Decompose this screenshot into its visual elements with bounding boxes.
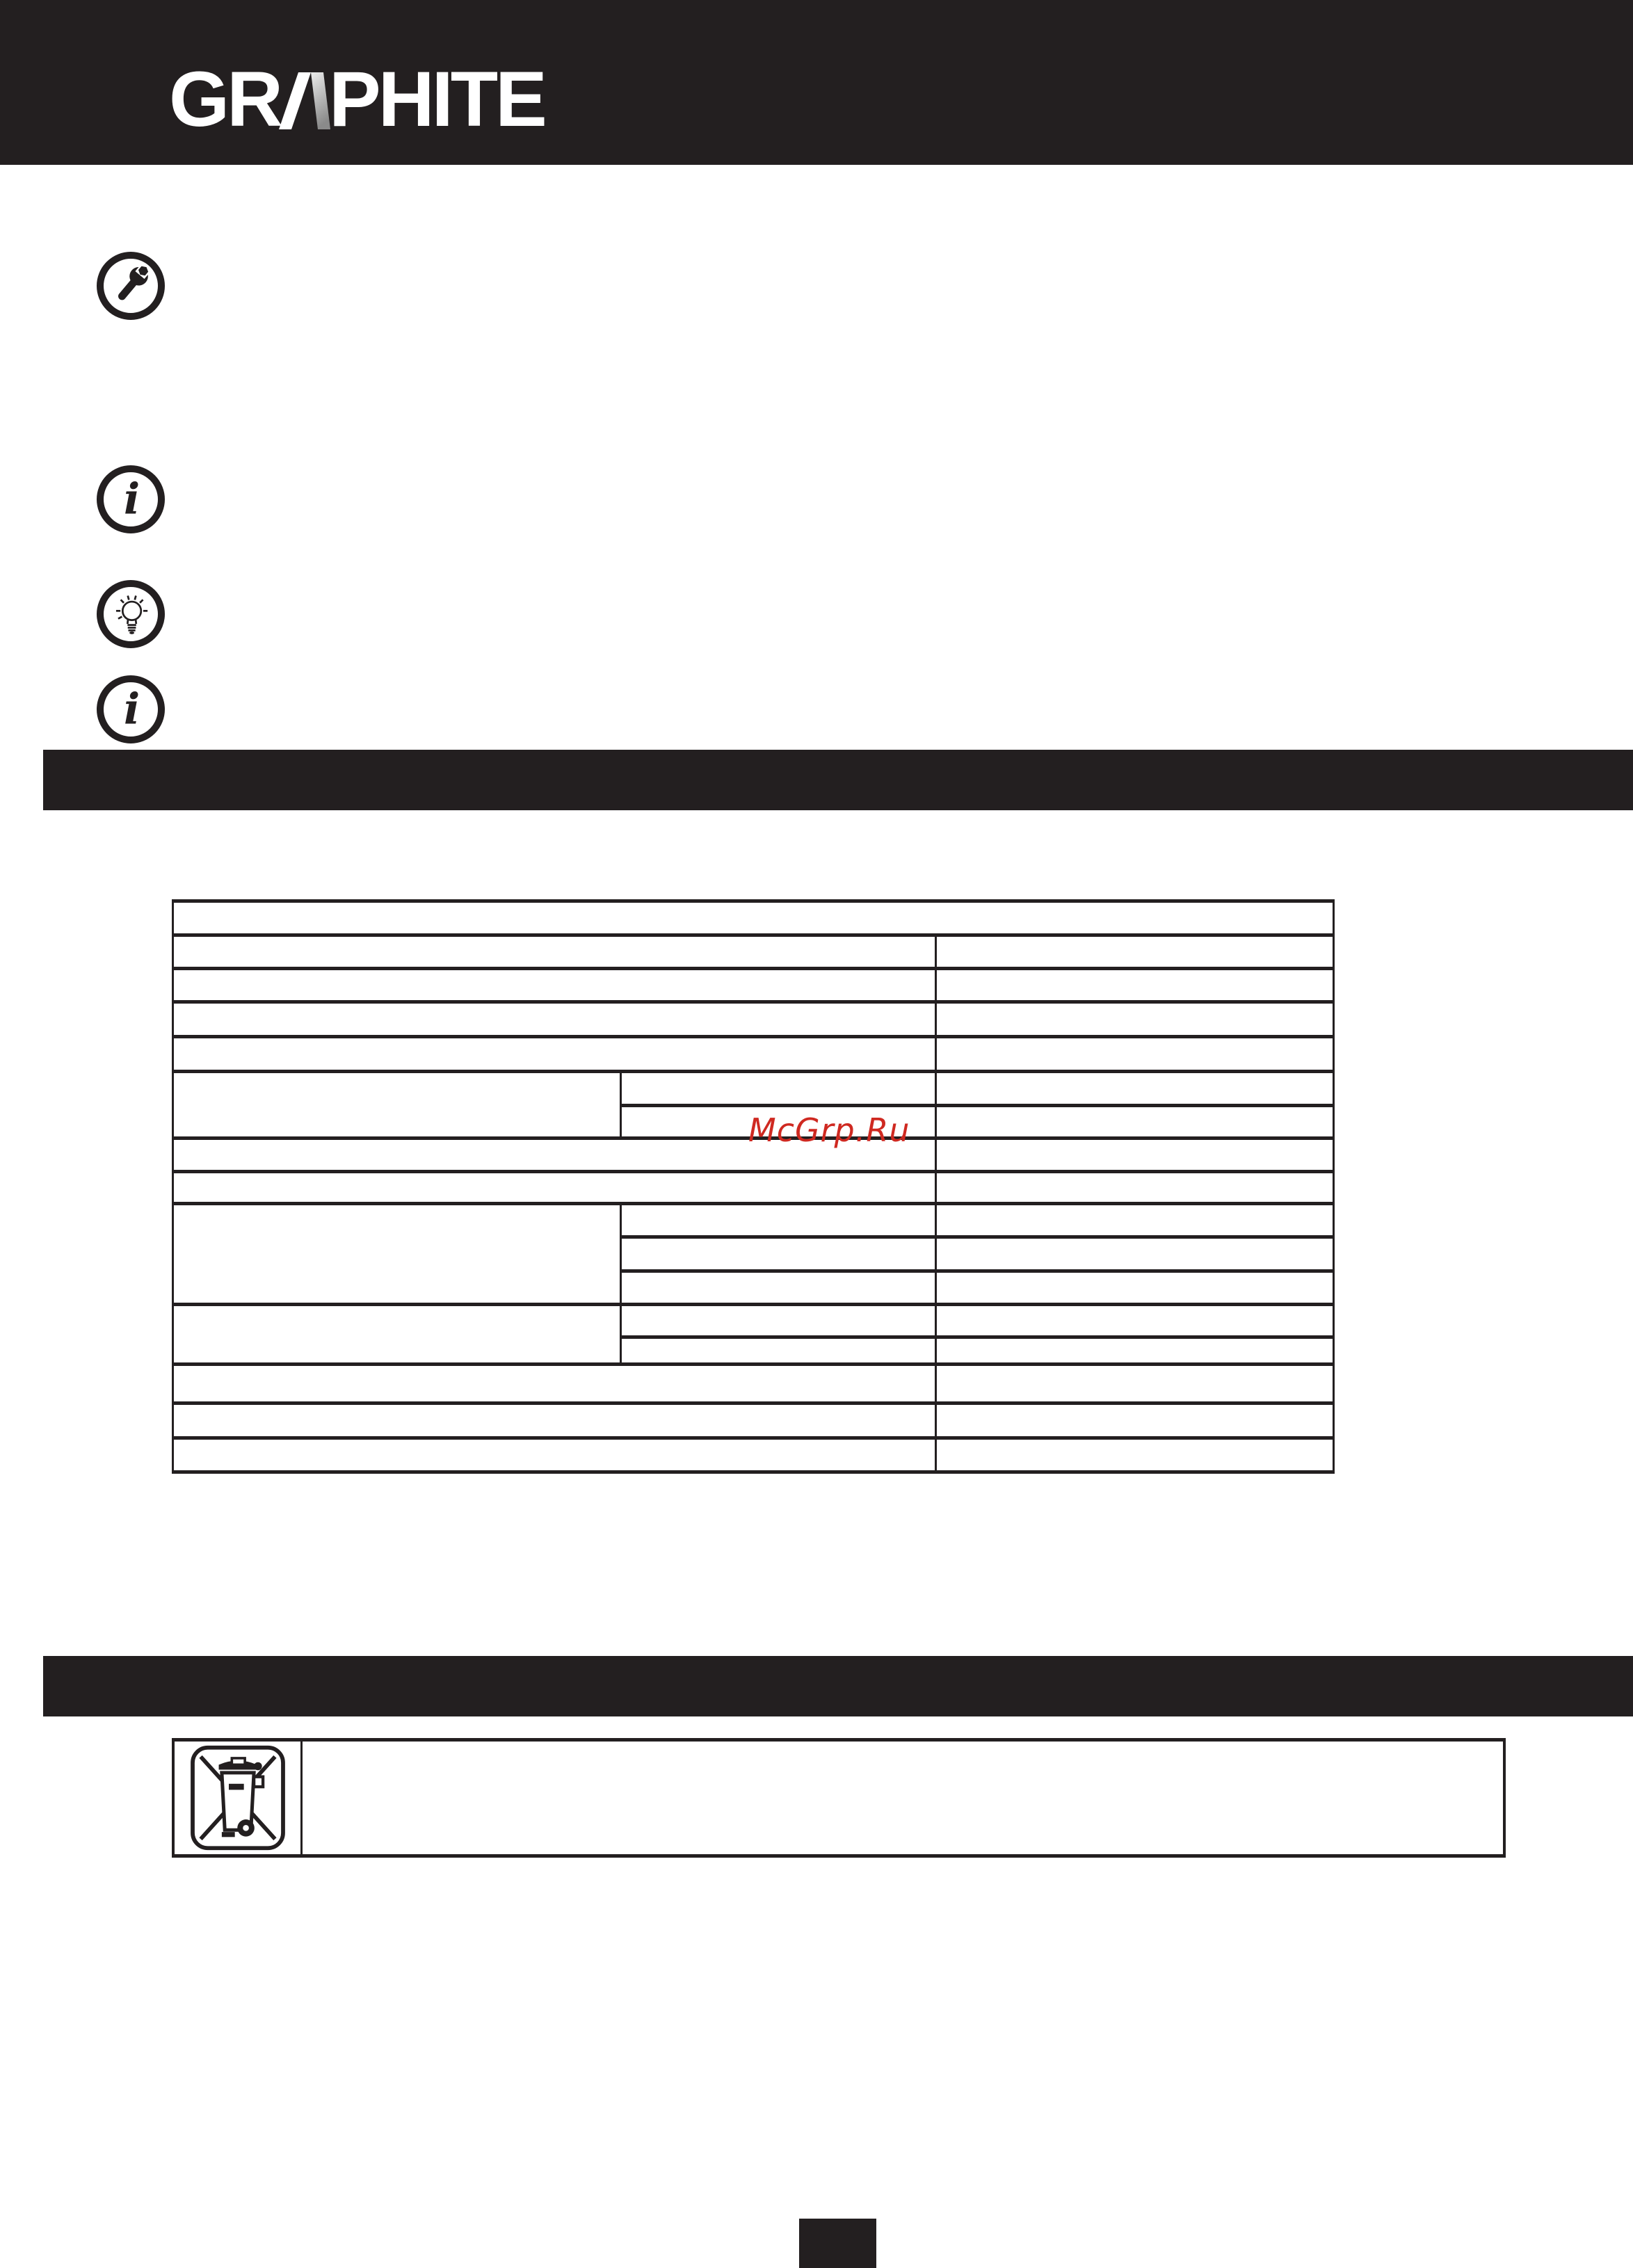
spec-cell — [173, 1365, 936, 1404]
spec-cell — [173, 1172, 936, 1204]
svg-text:i: i — [124, 474, 140, 524]
lightbulb-icon — [97, 580, 165, 648]
spec-cell — [936, 1237, 1334, 1271]
spec-cell — [936, 1337, 1334, 1365]
spec-table — [172, 899, 1335, 1474]
spec-cell — [621, 1237, 936, 1271]
spec-cell — [936, 935, 1334, 969]
spec-cell — [936, 1002, 1334, 1037]
spec-cell — [936, 1271, 1334, 1305]
spec-cell — [173, 1404, 936, 1438]
spec-cell — [936, 1438, 1334, 1472]
manual-page: GR PHITE — [0, 0, 1633, 2268]
spec-cell — [936, 1305, 1334, 1337]
info-glyph: i — [104, 682, 158, 737]
spec-cell — [936, 1204, 1334, 1237]
spec-cell — [621, 1305, 936, 1337]
spec-cell — [173, 1002, 936, 1037]
crossed-out-wheelie-bin-icon — [185, 1744, 291, 1852]
page-number-box — [799, 2219, 876, 2268]
mcgrp-watermark: McGrp.Ru — [748, 1114, 910, 1146]
info-glyph: i — [104, 472, 158, 526]
section-bar-1 — [43, 750, 1633, 810]
weee-icon-cell — [175, 1742, 303, 1854]
wrench-icon — [97, 252, 165, 320]
spec-cell — [173, 969, 936, 1002]
spec-cell — [173, 1037, 936, 1072]
weee-notice-box — [172, 1738, 1506, 1858]
spec-cell — [621, 1072, 936, 1106]
info-icon: i — [97, 465, 165, 533]
spec-cell — [936, 1037, 1334, 1072]
header-bar: GR PHITE — [0, 0, 1633, 165]
lightbulb-glyph — [104, 586, 158, 642]
weee-text — [303, 1742, 1503, 1854]
info-icon-2: i — [97, 675, 165, 743]
wrench-glyph — [104, 259, 158, 313]
svg-text:i: i — [124, 684, 140, 734]
logo-letter-a-icon — [279, 72, 330, 129]
graphite-logo: GR PHITE — [169, 69, 545, 130]
spec-cell — [936, 1072, 1334, 1106]
spec-cell — [173, 1438, 936, 1472]
spec-cell — [936, 1404, 1334, 1438]
spec-group-label-cell — [173, 1305, 621, 1365]
spec-cell — [936, 1172, 1334, 1204]
spec-cell — [621, 1271, 936, 1305]
spec-table-header-cell — [173, 901, 1334, 935]
spec-cell — [621, 1204, 936, 1237]
logo-text-phite: PHITE — [329, 69, 545, 130]
section-bar-2 — [43, 1656, 1633, 1716]
spec-cell — [173, 935, 936, 969]
spec-group-label-cell — [173, 1072, 621, 1139]
spec-cell — [936, 1139, 1334, 1172]
spec-cell — [936, 1365, 1334, 1404]
logo-text-gr: GR — [169, 69, 280, 130]
spec-cell — [936, 969, 1334, 1002]
spec-group-label-cell — [173, 1204, 621, 1305]
spec-cell — [936, 1106, 1334, 1139]
spec-cell — [621, 1337, 936, 1365]
